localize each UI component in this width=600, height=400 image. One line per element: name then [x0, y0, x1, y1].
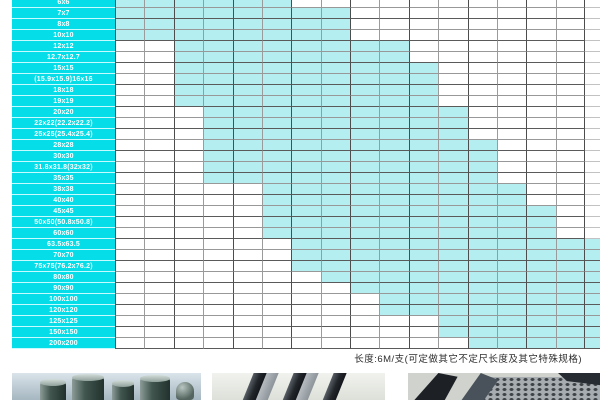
grid-cell	[321, 52, 350, 63]
grid-cell	[526, 0, 555, 8]
steel-round-bars-photo	[12, 373, 201, 400]
table-row: 75x75(76.2x76.2)	[12, 261, 600, 272]
grid-cell	[497, 162, 526, 173]
grid-cell	[233, 206, 262, 217]
grid-cell	[497, 41, 526, 52]
size-row-label: 35x35	[12, 173, 115, 184]
grid-cell	[291, 162, 320, 173]
grid-cell	[438, 74, 467, 85]
grid-cell	[438, 239, 467, 250]
grid-cell	[526, 41, 555, 52]
grid-cell-partial	[585, 316, 600, 327]
grid-cell-partial	[585, 63, 600, 74]
grid-cell	[233, 96, 262, 107]
grid-cell	[497, 19, 526, 30]
grid-cell	[468, 41, 497, 52]
grid-cell	[350, 272, 379, 283]
grid-cell	[438, 151, 467, 162]
grid-cell	[291, 173, 320, 184]
table-row: 45x45	[12, 206, 600, 217]
grid-cell	[174, 41, 203, 52]
grid-cell	[526, 74, 555, 85]
cylinder-shape	[140, 378, 170, 400]
grid-cell	[203, 19, 232, 30]
grid-cell	[438, 63, 467, 74]
grid-cell	[556, 41, 585, 52]
grid-cell	[291, 8, 320, 19]
grid-cell	[468, 107, 497, 118]
grid-cell	[115, 0, 144, 8]
grid-cell	[233, 294, 262, 305]
cylinder-cap	[72, 374, 104, 381]
grid-cell	[291, 118, 320, 129]
grid-cell	[350, 140, 379, 151]
grid-cell	[497, 107, 526, 118]
grid-cell	[262, 19, 291, 30]
grid-cell	[526, 228, 555, 239]
size-row-label: 70x70	[12, 250, 115, 261]
grid-cell-partial	[585, 151, 600, 162]
grid-cell	[262, 41, 291, 52]
grid-cell	[174, 151, 203, 162]
grid-cell	[233, 250, 262, 261]
grid-cell	[174, 52, 203, 63]
grid-cell	[233, 316, 262, 327]
grid-cell	[379, 52, 408, 63]
grid-cell-partial	[585, 217, 600, 228]
grid-cell	[497, 272, 526, 283]
grid-cell	[556, 63, 585, 74]
grid-cell	[262, 239, 291, 250]
grid-cell	[350, 129, 379, 140]
grid-cell	[468, 129, 497, 140]
size-row-label: 30x30	[12, 151, 115, 162]
grid-cell	[350, 316, 379, 327]
grid-cell-partial	[585, 327, 600, 338]
grid-cell	[526, 129, 555, 140]
grid-cell	[321, 30, 350, 41]
grid-cell	[379, 96, 408, 107]
grid-cell	[497, 217, 526, 228]
grid-cell	[409, 327, 438, 338]
grid-cell	[350, 217, 379, 228]
grid-cell	[115, 63, 144, 74]
grid-cell	[115, 305, 144, 316]
grid-cell	[409, 261, 438, 272]
grid-cell-partial	[585, 283, 600, 294]
grid-cell	[262, 184, 291, 195]
grid-cell	[233, 30, 262, 41]
grid-cell	[556, 52, 585, 63]
grid-cell	[203, 228, 232, 239]
grid-cell	[174, 316, 203, 327]
grid-cell	[262, 228, 291, 239]
grid-cell	[526, 206, 555, 217]
grid-cell	[321, 338, 350, 349]
grid-cell	[556, 107, 585, 118]
grid-cell	[321, 217, 350, 228]
grid-cell-partial	[585, 206, 600, 217]
grid-cell	[262, 250, 291, 261]
grid-cell	[468, 239, 497, 250]
grid-cell	[409, 41, 438, 52]
grid-cell	[291, 41, 320, 52]
grid-cell	[556, 140, 585, 151]
grid-cell	[409, 184, 438, 195]
steel-angle-and-perforated-photo	[408, 373, 600, 400]
grid-cell	[174, 19, 203, 30]
grid-cell	[526, 184, 555, 195]
grid-cell	[438, 283, 467, 294]
grid-cell	[497, 0, 526, 8]
grid-cell	[409, 195, 438, 206]
grid-cell	[291, 96, 320, 107]
grid-cell	[233, 184, 262, 195]
grid-cell	[526, 162, 555, 173]
grid-cell	[438, 41, 467, 52]
grid-cell	[115, 206, 144, 217]
grid-cell	[174, 283, 203, 294]
grid-cell-partial	[585, 85, 600, 96]
grid-cell	[233, 8, 262, 19]
size-row-label: 31.8x31.8(32x32)	[12, 162, 115, 173]
grid-cell	[203, 118, 232, 129]
grid-cell	[409, 0, 438, 8]
grid-cell	[409, 8, 438, 19]
table-row: 12.7x12.7	[12, 52, 600, 63]
grid-cell	[526, 305, 555, 316]
grid-cell	[291, 129, 320, 140]
grid-cell	[321, 0, 350, 8]
grid-cell	[556, 173, 585, 184]
grid-cell	[350, 338, 379, 349]
grid-cell	[203, 74, 232, 85]
grid-cell	[379, 118, 408, 129]
table-row: 40x40	[12, 195, 600, 206]
grid-cell	[526, 239, 555, 250]
grid-cell	[203, 195, 232, 206]
size-row-label: 60x60	[12, 228, 115, 239]
grid-cell	[556, 316, 585, 327]
grid-cell	[409, 85, 438, 96]
size-row-label: 25x25(25.4x25.4)	[12, 129, 115, 140]
size-row-label: 40x40	[12, 195, 115, 206]
grid-cell	[144, 30, 173, 41]
grid-cell	[233, 338, 262, 349]
grid-cell	[321, 173, 350, 184]
size-row-label: 22x22(22.2x22.2)	[12, 118, 115, 129]
size-row-label: 19x19	[12, 96, 115, 107]
grid-cell	[526, 338, 555, 349]
grid-cell	[379, 217, 408, 228]
grid-cell	[115, 96, 144, 107]
grid-cell	[144, 151, 173, 162]
grid-cell	[144, 272, 173, 283]
grid-cell	[409, 107, 438, 118]
grid-cell	[379, 305, 408, 316]
grid-cell	[497, 118, 526, 129]
grid-cell	[203, 305, 232, 316]
size-row-label: 100x100	[12, 294, 115, 305]
grid-cell	[497, 52, 526, 63]
grid-cell-partial	[585, 74, 600, 85]
grid-cell	[203, 338, 232, 349]
cylinder-cap	[140, 375, 170, 382]
grid-cell	[497, 195, 526, 206]
grid-cell	[203, 239, 232, 250]
grid-cell	[262, 294, 291, 305]
grid-cell	[262, 316, 291, 327]
grid-cell	[115, 30, 144, 41]
grid-cell	[262, 74, 291, 85]
grid-cell	[115, 140, 144, 151]
grid-cell	[556, 338, 585, 349]
grid-cell	[497, 140, 526, 151]
grid-cell	[409, 173, 438, 184]
grid-cell	[350, 19, 379, 30]
grid-cell-partial	[585, 8, 600, 19]
grid-cell	[144, 96, 173, 107]
grid-cell	[233, 85, 262, 96]
grid-cell	[321, 151, 350, 162]
grid-cell	[321, 74, 350, 85]
grid-cell	[203, 41, 232, 52]
grid-cell	[233, 261, 262, 272]
table-row: 150x150	[12, 327, 600, 338]
grid-cell	[144, 74, 173, 85]
grid-cell	[468, 206, 497, 217]
grid-cell	[350, 107, 379, 118]
size-row-label: 200x200	[12, 338, 115, 349]
grid-cell	[468, 217, 497, 228]
grid-cell	[203, 316, 232, 327]
grid-cell	[409, 338, 438, 349]
grid-cell	[233, 52, 262, 63]
grid-cell	[409, 52, 438, 63]
grid-cell	[115, 52, 144, 63]
grid-cell	[115, 173, 144, 184]
grid-cell	[262, 327, 291, 338]
grid-cell	[526, 96, 555, 107]
size-row-label: 12x12	[12, 41, 115, 52]
grid-cell	[144, 19, 173, 30]
table-row: 25x25(25.4x25.4)	[12, 129, 600, 140]
size-row-label: 45x45	[12, 206, 115, 217]
grid-cell	[144, 338, 173, 349]
grid-cell	[115, 19, 144, 30]
grid-cell	[115, 283, 144, 294]
grid-cell	[409, 30, 438, 41]
grid-cell	[321, 184, 350, 195]
grid-cell	[203, 96, 232, 107]
table-row: 19x19	[12, 96, 600, 107]
grid-cell	[438, 195, 467, 206]
grid-cell	[350, 250, 379, 261]
table-row: 15x15	[12, 63, 600, 74]
grid-cell	[468, 294, 497, 305]
table-row: 38x38	[12, 184, 600, 195]
grid-cell	[262, 30, 291, 41]
grid-cell	[321, 261, 350, 272]
grid-cell	[115, 118, 144, 129]
grid-cell	[438, 173, 467, 184]
size-row-label: 50x50(50.8x50.8)	[12, 217, 115, 228]
grid-cell	[144, 118, 173, 129]
grid-cell	[321, 140, 350, 151]
grid-cell	[174, 129, 203, 140]
grid-cell	[468, 250, 497, 261]
grid-cell	[174, 118, 203, 129]
grid-cell	[203, 140, 232, 151]
grid-cell	[438, 327, 467, 338]
grid-cell	[497, 96, 526, 107]
grid-cell	[233, 129, 262, 140]
table-row: 10x10	[12, 30, 600, 41]
grid-cell	[233, 173, 262, 184]
grid-cell	[409, 272, 438, 283]
grid-cell	[468, 85, 497, 96]
table-row: 35x35	[12, 173, 600, 184]
grid-cell	[526, 294, 555, 305]
grid-cell	[556, 250, 585, 261]
size-row-label: 150x150	[12, 327, 115, 338]
grid-cell	[526, 250, 555, 261]
grid-cell	[321, 250, 350, 261]
grid-cell	[144, 85, 173, 96]
size-row-label: 20x20	[12, 107, 115, 118]
grid-cell	[556, 19, 585, 30]
grid-cell	[379, 195, 408, 206]
grid-cell	[115, 85, 144, 96]
size-row-label: 38x38	[12, 184, 115, 195]
grid-cell	[233, 107, 262, 118]
grid-cell	[203, 30, 232, 41]
grid-cell	[468, 338, 497, 349]
grid-cell	[262, 129, 291, 140]
grid-cell	[233, 63, 262, 74]
grid-cell	[203, 272, 232, 283]
grid-cell	[262, 162, 291, 173]
grid-cell	[203, 327, 232, 338]
grid-cell	[115, 272, 144, 283]
grid-cell	[409, 129, 438, 140]
grid-cell	[174, 0, 203, 8]
grid-cell	[144, 41, 173, 52]
size-row-label: 12.7x12.7	[12, 52, 115, 63]
grid-cell	[262, 0, 291, 8]
grid-cell	[438, 228, 467, 239]
grid-cell-partial	[585, 96, 600, 107]
grid-cell	[262, 173, 291, 184]
grid-cell	[468, 228, 497, 239]
grid-cell	[115, 239, 144, 250]
grid-cell	[115, 151, 144, 162]
grid-cell	[115, 217, 144, 228]
grid-cell	[291, 338, 320, 349]
grid-cell	[233, 19, 262, 30]
grid-cell	[262, 118, 291, 129]
grid-cell	[497, 316, 526, 327]
grid-cell	[556, 327, 585, 338]
grid-cell-partial	[585, 107, 600, 118]
grid-cell	[526, 217, 555, 228]
grid-cell	[291, 151, 320, 162]
grid-cell	[379, 41, 408, 52]
grid-cell	[233, 239, 262, 250]
grid-cell	[468, 63, 497, 74]
grid-cell	[233, 228, 262, 239]
grid-cell	[321, 41, 350, 52]
grid-cell	[291, 217, 320, 228]
grid-cell	[291, 316, 320, 327]
grid-cell	[438, 85, 467, 96]
grid-cell	[350, 283, 379, 294]
grid-cell	[262, 283, 291, 294]
grid-cell	[233, 151, 262, 162]
grid-cell	[233, 140, 262, 151]
grid-cell	[379, 228, 408, 239]
grid-cell	[262, 52, 291, 63]
grid-cell	[409, 206, 438, 217]
grid-cell	[233, 305, 262, 316]
table-row: 22x22(22.2x22.2)	[12, 118, 600, 129]
grid-cell	[556, 0, 585, 8]
grid-cell-partial	[585, 338, 600, 349]
grid-cell	[115, 184, 144, 195]
grid-cell	[144, 107, 173, 118]
grid-cell	[321, 162, 350, 173]
grid-cell	[438, 162, 467, 173]
grid-cell	[174, 173, 203, 184]
table-row: 18x18	[12, 85, 600, 96]
grid-cell	[115, 228, 144, 239]
grid-cell	[350, 8, 379, 19]
grid-cell	[526, 52, 555, 63]
grid-cell	[409, 316, 438, 327]
grid-cell	[468, 30, 497, 41]
grid-cell	[409, 162, 438, 173]
grid-cell	[144, 206, 173, 217]
grid-cell-partial	[585, 184, 600, 195]
grid-cell	[144, 63, 173, 74]
grid-cell	[409, 140, 438, 151]
grid-cell	[438, 8, 467, 19]
table-row: (15.9x15.9)16x16	[12, 74, 600, 85]
grid-cell	[233, 283, 262, 294]
grid-cell	[409, 239, 438, 250]
grid-cell	[468, 327, 497, 338]
grid-cell	[556, 74, 585, 85]
grid-cell	[291, 52, 320, 63]
grid-cell	[468, 283, 497, 294]
grid-cell	[262, 195, 291, 206]
grid-cell	[291, 272, 320, 283]
grid-cell	[291, 239, 320, 250]
steel-flat-bars-photo	[212, 373, 385, 400]
grid-cell	[438, 96, 467, 107]
size-row-label: 8x8	[12, 19, 115, 30]
grid-cell	[379, 63, 408, 74]
grid-cell	[526, 195, 555, 206]
grid-cell	[556, 96, 585, 107]
grid-cell	[379, 173, 408, 184]
grid-cell	[497, 184, 526, 195]
table-row: 28x28	[12, 140, 600, 151]
grid-cell	[115, 41, 144, 52]
grid-cell	[409, 305, 438, 316]
grid-cell	[233, 217, 262, 228]
grid-cell	[203, 217, 232, 228]
